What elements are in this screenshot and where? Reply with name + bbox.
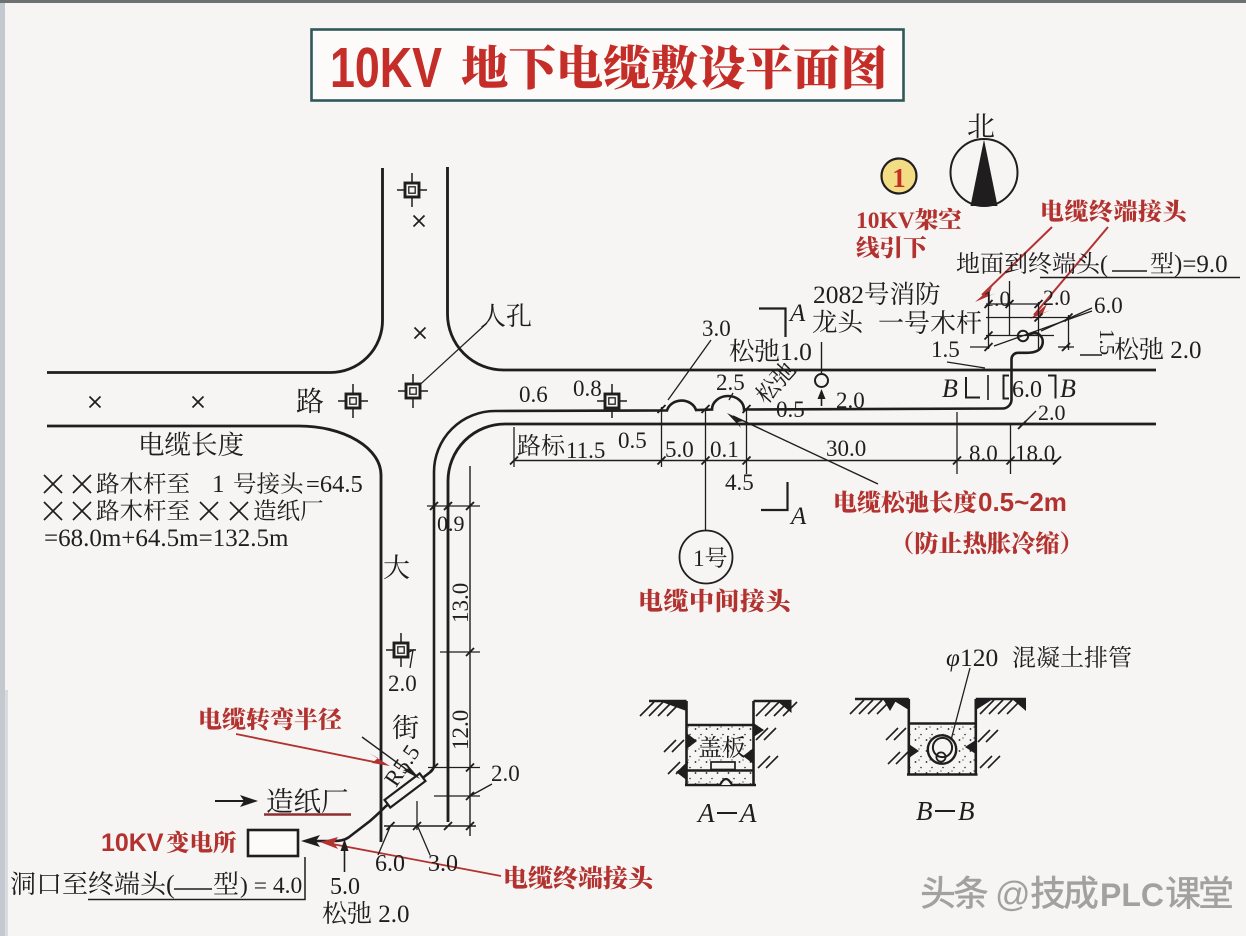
svg-text:1: 1 (892, 163, 906, 193)
svg-text:2.0: 2.0 (1164, 337, 1202, 364)
svg-text:0.5: 0.5 (776, 397, 805, 422)
svg-text:2.0: 2.0 (388, 671, 417, 696)
svg-text:1: 1 (212, 471, 225, 498)
svg-text:2.0: 2.0 (372, 901, 410, 928)
svg-text:B: B (1060, 374, 1076, 403)
svg-text:1.5: 1.5 (931, 337, 960, 362)
svg-text:2.0: 2.0 (491, 761, 520, 786)
svg-text:) = 4.0: ) = 4.0 (240, 873, 302, 899)
svg-text:5.0: 5.0 (665, 437, 694, 462)
svg-text:5.0: 5.0 (330, 874, 360, 900)
svg-text:13.0: 13.0 (448, 583, 473, 623)
svg-text:0.9: 0.9 (437, 511, 465, 536)
svg-text:10KV: 10KV (856, 208, 915, 234)
svg-text:2.5: 2.5 (716, 370, 745, 395)
svg-text:(: ( (166, 870, 175, 899)
svg-text:2.0: 2.0 (836, 388, 865, 413)
svg-text:A: A (789, 503, 807, 530)
svg-text:10KV: 10KV (101, 829, 164, 857)
svg-text:=64.5: =64.5 (306, 471, 363, 498)
svg-text:0.5: 0.5 (618, 428, 647, 453)
svg-text:0.5~2m: 0.5~2m (978, 487, 1067, 517)
svg-text:6.0: 6.0 (1094, 293, 1123, 318)
svg-text:A: A (738, 798, 757, 828)
svg-text:11.5: 11.5 (566, 438, 605, 463)
svg-text:18.0: 18.0 (1015, 441, 1055, 466)
svg-text:2.0: 2.0 (1038, 400, 1066, 425)
svg-text:φ: φ (946, 645, 960, 672)
svg-text:3.0: 3.0 (702, 316, 731, 341)
svg-text:1.0: 1.0 (780, 337, 812, 366)
svg-text:1: 1 (693, 546, 705, 571)
svg-text:3.0: 3.0 (428, 851, 458, 877)
svg-text:=68.0m+64.5m=132.5m: =68.0m+64.5m=132.5m (44, 525, 289, 552)
svg-text:2082: 2082 (813, 280, 864, 309)
svg-text:B: B (958, 796, 975, 826)
svg-text:0.8: 0.8 (573, 376, 602, 401)
svg-text:B: B (942, 374, 958, 403)
svg-text:A: A (696, 798, 715, 828)
svg-text:10KV: 10KV (330, 36, 442, 100)
svg-text:1.5: 1.5 (1095, 329, 1119, 355)
svg-text:0.1: 0.1 (710, 437, 739, 462)
svg-text:PLC: PLC (1100, 877, 1164, 913)
svg-text:B: B (916, 796, 933, 826)
svg-text:6.0: 6.0 (375, 851, 405, 877)
svg-text:1.0: 1.0 (983, 286, 1011, 311)
svg-text:8.0: 8.0 (969, 441, 998, 466)
svg-text:A: A (788, 300, 806, 327)
svg-text:)=9.0: )=9.0 (1174, 251, 1228, 278)
svg-text:(: ( (1100, 252, 1108, 278)
svg-text:30.0: 30.0 (826, 436, 866, 461)
svg-text:2.0: 2.0 (1043, 285, 1071, 310)
svg-text:4.5: 4.5 (725, 470, 754, 495)
svg-text:0.6: 0.6 (519, 382, 548, 407)
svg-text:@: @ (995, 875, 1031, 914)
svg-text:12.0: 12.0 (448, 710, 473, 750)
svg-text:120: 120 (960, 643, 998, 672)
